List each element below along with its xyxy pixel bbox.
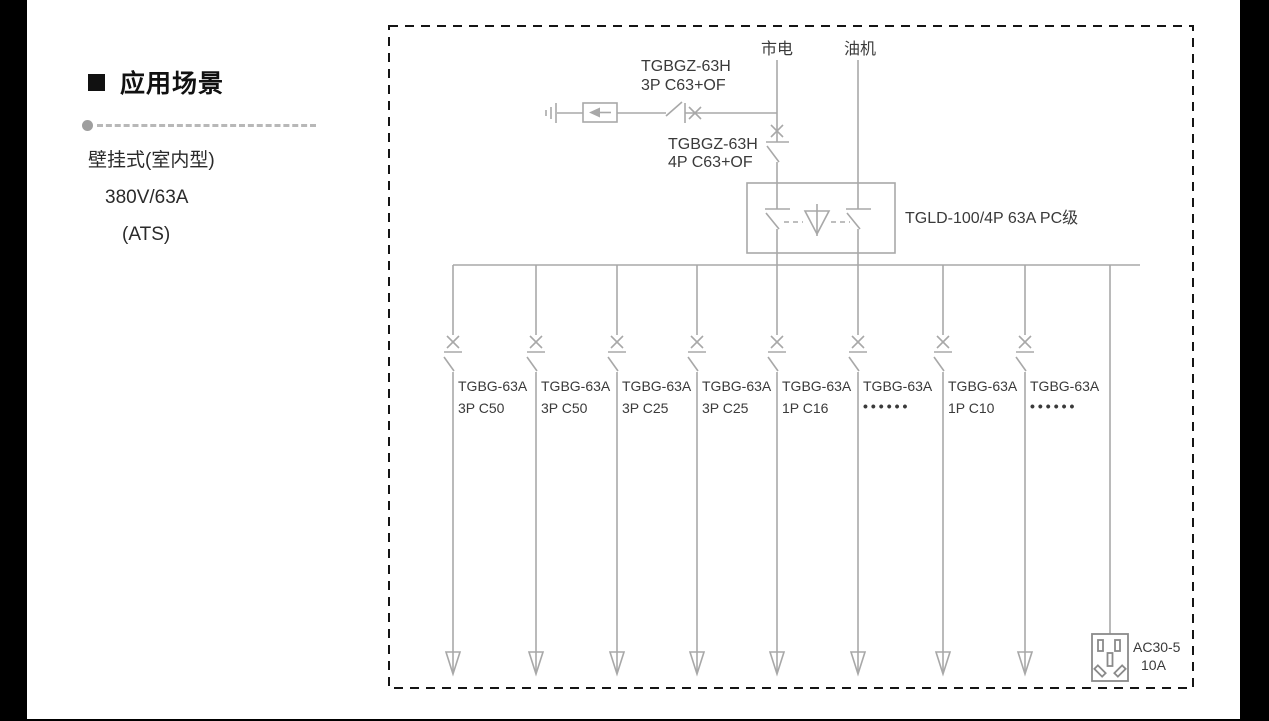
branch-model-label: TGBG-63A (622, 378, 692, 394)
feeder-branch-4: TGBG-63A 3P C25 (688, 265, 772, 674)
socket-icon (1092, 634, 1128, 681)
main-breaker-model-label: TGBGZ-63H (668, 136, 758, 153)
branch-model-label: TGBG-63A (1030, 378, 1100, 394)
branch-spec-label: •••••• (1030, 398, 1077, 414)
feeder-branch-6: TGBG-63A •••••• (849, 265, 933, 674)
ats-switch: TGLD-100/4P 63A PC级 (747, 183, 1078, 265)
feeder-branch-1: TGBG-63A 3P C50 (444, 265, 528, 674)
feeder-branch-8: TGBG-63A •••••• (1016, 265, 1100, 674)
branch-spec-label: 3P C50 (541, 400, 588, 416)
branch-model-label: TGBG-63A (541, 378, 611, 394)
mains-label: 市电 (761, 40, 793, 58)
ats-actuator-icon (784, 204, 850, 236)
breaker-icon (934, 336, 952, 371)
feeder-branch-7: TGBG-63A 1P C10 (934, 265, 1018, 674)
main-breaker-spec-label: 4P C63+OF (668, 154, 753, 171)
generator-label: 油机 (844, 40, 876, 58)
feeder-branch-2: TGBG-63A 3P C50 (527, 265, 611, 674)
branch-spec-label: 3P C25 (702, 400, 749, 416)
breaker-icon (688, 336, 706, 371)
branch-model-label: TGBG-63A (948, 378, 1018, 394)
spd-breaker-model-label: TGBGZ-63H (641, 58, 731, 75)
breaker-icon (527, 336, 545, 371)
diagram-border (389, 26, 1193, 688)
branch-spec-label: 1P C16 (782, 400, 829, 416)
branch-spec-label: 3P C50 (458, 400, 505, 416)
branch-model-label: TGBG-63A (702, 378, 772, 394)
branch-spec-label: •••••• (863, 398, 910, 414)
spd-icon (583, 103, 617, 122)
ats-label: TGLD-100/4P 63A PC级 (905, 209, 1078, 227)
branch-model-label: TGBG-63A (458, 378, 528, 394)
breaker-icon (444, 336, 462, 371)
spd-branch: TGBGZ-63H 3P C63+OF (546, 58, 777, 123)
branch-spec-label: 3P C25 (622, 400, 669, 416)
right-letterbox-bar (1240, 0, 1269, 721)
spd-breaker-icon (666, 102, 701, 123)
feeder-branch-3: TGBG-63A 3P C25 (608, 265, 692, 674)
feeder-branch-5: TGBG-63A 1P C16 (768, 265, 852, 674)
socket-branch: AC30-5 10A (1092, 265, 1181, 681)
single-line-diagram: 市电 TGBGZ-63H 4P C63+OF 油机 TGBGZ-63H 3P C… (0, 0, 1269, 721)
branch-spec-label: 1P C10 (948, 400, 995, 416)
main-breaker-icon (766, 125, 789, 162)
breaker-icon (768, 336, 786, 371)
breaker-icon (1016, 336, 1034, 371)
ats-generator-contact-icon (846, 209, 871, 229)
socket-rating-label: 10A (1141, 657, 1167, 673)
branch-model-label: TGBG-63A (782, 378, 852, 394)
ats-mains-contact-icon (765, 209, 790, 229)
breaker-icon (608, 336, 626, 371)
slide: 应用场景 壁挂式(室内型) 380V/63A (ATS) 市电 TGBGZ-63… (0, 0, 1269, 721)
breaker-icon (849, 336, 867, 371)
left-letterbox-bar (0, 0, 27, 721)
ground-icon (546, 103, 556, 123)
socket-model-label: AC30-5 (1133, 639, 1181, 655)
branch-model-label: TGBG-63A (863, 378, 933, 394)
spd-breaker-spec-label: 3P C63+OF (641, 77, 726, 94)
